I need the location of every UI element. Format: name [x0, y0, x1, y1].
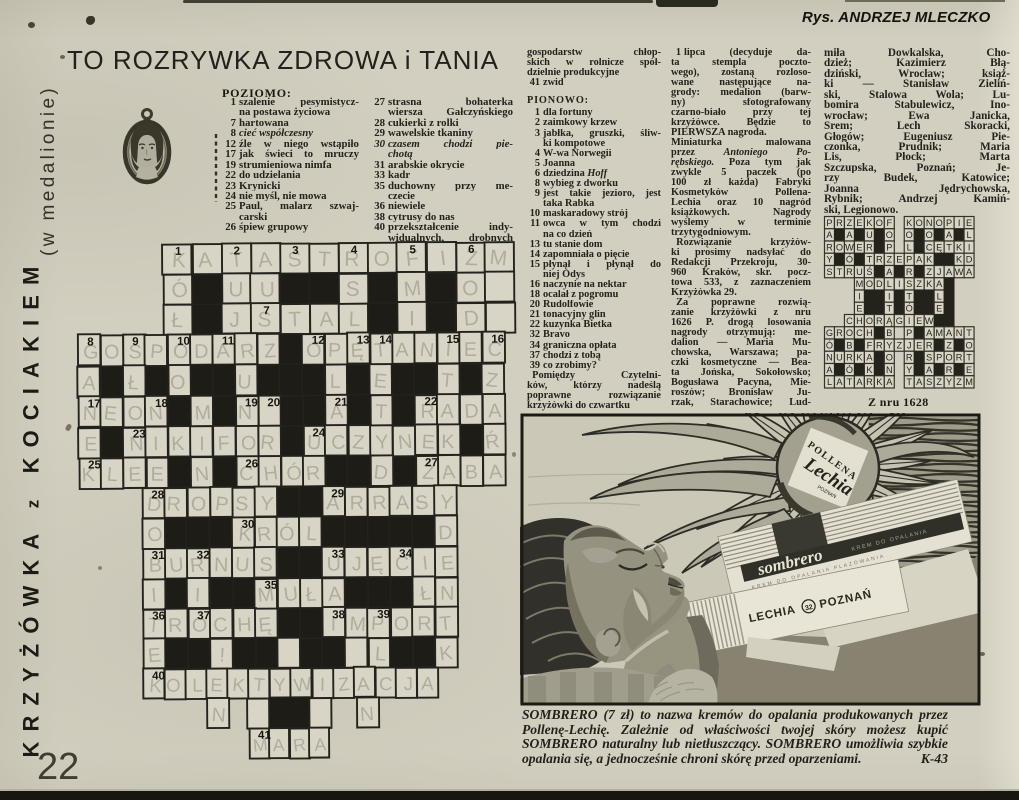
svg-text:E: E [916, 316, 922, 326]
svg-text:Y: Y [826, 255, 832, 265]
svg-text:A: A [946, 328, 953, 338]
svg-text:A: A [826, 230, 833, 240]
svg-text:M: M [856, 279, 864, 289]
svg-text:J: J [937, 267, 942, 277]
svg-text:Y: Y [946, 377, 952, 387]
svg-text:O: O [886, 353, 893, 363]
svg-text:A: A [966, 267, 973, 277]
svg-text:S: S [906, 279, 912, 289]
svg-text:I: I [968, 242, 971, 252]
svg-text:O: O [926, 230, 933, 240]
svg-text:T: T [886, 304, 892, 314]
svg-text:Z: Z [896, 340, 902, 350]
svg-text:S: S [926, 353, 932, 363]
svg-text:Ó: Ó [846, 365, 853, 375]
svg-text:R: R [906, 353, 913, 363]
svg-text:K: K [906, 218, 913, 228]
svg-text:R: R [906, 267, 913, 277]
svg-text:L: L [827, 377, 832, 387]
svg-text:R: R [836, 328, 843, 338]
svg-text:U: U [856, 267, 863, 277]
svg-text:K: K [956, 242, 963, 252]
svg-text:P: P [946, 218, 952, 228]
svg-text:I: I [888, 291, 891, 301]
svg-text:Ś: Ś [866, 266, 872, 277]
svg-text:Z: Z [916, 279, 922, 289]
svg-text:L: L [907, 242, 912, 252]
svg-text:T: T [966, 353, 972, 363]
svg-text:R: R [946, 365, 953, 375]
svg-text:R: R [876, 316, 883, 326]
svg-text:R: R [846, 353, 853, 363]
svg-text:J: J [907, 340, 912, 350]
svg-text:T: T [906, 377, 912, 387]
svg-text:M: M [965, 377, 973, 387]
svg-text:P: P [906, 255, 912, 265]
svg-text:C: C [856, 328, 863, 338]
svg-text:L: L [887, 279, 892, 289]
svg-text:Z: Z [886, 255, 892, 265]
svg-text:Ó: Ó [826, 340, 833, 350]
svg-text:E: E [856, 218, 862, 228]
svg-text:N: N [886, 365, 893, 375]
svg-text:N: N [926, 218, 933, 228]
svg-text:K: K [866, 365, 873, 375]
svg-text:C: C [926, 242, 933, 252]
svg-text:U: U [866, 230, 873, 240]
svg-text:O: O [936, 218, 943, 228]
svg-text:A: A [856, 377, 863, 387]
svg-text:K: K [956, 255, 963, 265]
svg-text:A: A [916, 255, 923, 265]
svg-text:O: O [876, 218, 883, 228]
svg-text:I: I [908, 316, 911, 326]
svg-text:N: N [956, 328, 963, 338]
svg-text:R: R [876, 255, 883, 265]
svg-text:A: A [926, 328, 933, 338]
svg-text:H: H [866, 328, 873, 338]
svg-text:I: I [958, 218, 961, 228]
svg-text:F: F [867, 340, 873, 350]
svg-text:O: O [916, 218, 923, 228]
svg-text:E: E [916, 340, 922, 350]
svg-text:K: K [856, 353, 863, 363]
svg-text:O: O [866, 279, 873, 289]
svg-text:O: O [946, 353, 953, 363]
svg-text:P: P [826, 218, 832, 228]
svg-text:L: L [967, 230, 972, 240]
svg-text:Ó: Ó [846, 255, 853, 265]
svg-text:U: U [836, 353, 843, 363]
svg-text:Z: Z [936, 377, 942, 387]
svg-text:O: O [906, 230, 913, 240]
svg-text:O: O [966, 340, 973, 350]
svg-text:R: R [826, 242, 833, 252]
svg-text:Y: Y [886, 340, 892, 350]
svg-text:C: C [846, 316, 853, 326]
svg-text:M: M [935, 328, 943, 338]
svg-text:D: D [966, 255, 973, 265]
svg-text:A: A [926, 365, 933, 375]
svg-text:T: T [906, 291, 912, 301]
svg-text:O: O [836, 242, 843, 252]
svg-text:T: T [837, 267, 843, 277]
svg-text:I: I [898, 279, 901, 289]
svg-text:R: R [956, 353, 963, 363]
svg-text:Y: Y [906, 365, 912, 375]
svg-text:K: K [926, 279, 933, 289]
svg-text:A: A [916, 377, 923, 387]
svg-text:Ó: Ó [906, 304, 913, 314]
svg-text:E: E [936, 304, 942, 314]
svg-text:Z: Z [956, 377, 962, 387]
svg-text:W: W [845, 242, 854, 252]
svg-text:E: E [966, 218, 972, 228]
svg-text:G: G [896, 316, 903, 326]
svg-text:A: A [886, 267, 893, 277]
svg-text:Z: Z [926, 267, 932, 277]
svg-text:K: K [876, 377, 883, 387]
svg-text:A: A [826, 365, 833, 375]
svg-text:S: S [926, 377, 932, 387]
svg-text:E: E [856, 242, 862, 252]
svg-text:E: E [896, 255, 902, 265]
svg-text:A: A [846, 230, 853, 240]
svg-text:E: E [966, 365, 972, 375]
svg-text:L: L [937, 291, 942, 301]
svg-text:T: T [847, 377, 853, 387]
svg-text:A: A [866, 353, 873, 363]
svg-text:R: R [926, 340, 933, 350]
svg-text:K: K [866, 218, 873, 228]
svg-text:S: S [826, 267, 832, 277]
svg-text:I: I [858, 291, 861, 301]
svg-text:K: K [926, 255, 933, 265]
svg-text:P: P [886, 242, 892, 252]
svg-text:H: H [856, 316, 863, 326]
svg-text:Ą: Ą [886, 316, 893, 326]
svg-text:R: R [836, 218, 843, 228]
svg-text:A: A [946, 267, 953, 277]
svg-text:D: D [876, 279, 883, 289]
svg-text:R: R [866, 242, 873, 252]
svg-text:T: T [966, 328, 972, 338]
svg-text:E: E [856, 304, 862, 314]
svg-text:P: P [906, 328, 912, 338]
svg-text:R: R [876, 340, 883, 350]
svg-text:O: O [846, 328, 853, 338]
svg-text:A: A [886, 377, 893, 387]
svg-text:Z: Z [946, 340, 952, 350]
svg-text:B: B [846, 340, 852, 350]
svg-text:F: F [886, 218, 892, 228]
svg-text:T: T [867, 255, 873, 265]
svg-text:R: R [866, 377, 873, 387]
svg-text:G: G [826, 328, 833, 338]
svg-text:A: A [936, 279, 943, 289]
svg-text:R: R [846, 267, 853, 277]
svg-text:P: P [936, 353, 942, 363]
svg-text:N: N [826, 353, 833, 363]
svg-text:O: O [866, 316, 873, 326]
svg-text:Ę: Ę [936, 242, 942, 252]
svg-text:A: A [836, 377, 843, 387]
svg-text:T: T [946, 242, 952, 252]
svg-text:W: W [925, 316, 934, 326]
svg-text:Z: Z [847, 218, 853, 228]
svg-text:A: A [946, 230, 953, 240]
svg-text:B: B [886, 328, 892, 338]
svg-text:O: O [886, 230, 893, 240]
svg-text:W: W [955, 267, 964, 277]
